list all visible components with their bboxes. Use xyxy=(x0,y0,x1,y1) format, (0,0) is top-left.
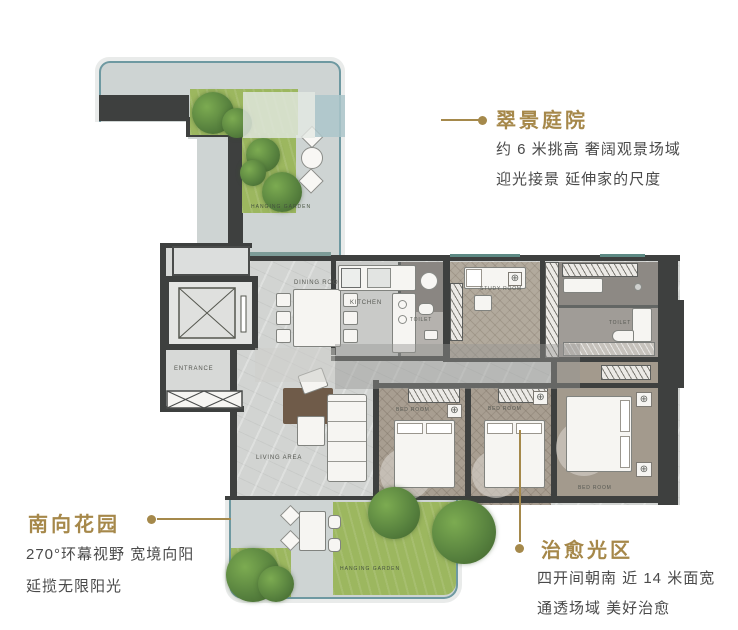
window-strip xyxy=(600,254,645,257)
callout-connector xyxy=(157,518,231,520)
toilet-icon xyxy=(612,330,634,342)
nightstand-light-icon: ⊕ xyxy=(447,404,462,418)
downlight-icon xyxy=(634,283,642,291)
basin-icon xyxy=(424,330,438,340)
nightstand-light-icon: ⊕ xyxy=(636,392,652,407)
washer-icon xyxy=(420,272,438,290)
terrace-door-line xyxy=(245,252,331,256)
ceiling-light-icon: ⊕ xyxy=(508,272,522,286)
wall-segment xyxy=(228,135,243,257)
bedroom1-label: BED ROOM xyxy=(396,407,430,413)
cloak-wardrobe xyxy=(562,263,638,277)
living-label: LIVING AREA xyxy=(256,455,302,461)
sofa xyxy=(327,394,367,482)
window-strip xyxy=(450,254,520,257)
study-label: STUDY ROOM xyxy=(462,286,540,292)
tree xyxy=(240,160,266,186)
garden-label: HANGING GARDEN xyxy=(340,566,400,572)
bed-pillow xyxy=(620,436,630,468)
callout-south-garden-title: 南向花园 xyxy=(28,508,120,537)
shoe-cabinet-icon xyxy=(166,390,243,409)
entrance-label: ENTRANCE xyxy=(174,366,213,372)
callout-dot xyxy=(515,544,524,553)
callout-dot xyxy=(147,515,156,524)
wardrobe xyxy=(601,365,651,380)
dining-room-label: DINING ROOM xyxy=(294,280,344,286)
garden-chair xyxy=(328,515,341,529)
bed-pillow xyxy=(620,400,630,432)
stove-icon xyxy=(367,268,391,288)
tree xyxy=(432,500,496,564)
bedroom2-label: BED ROOM xyxy=(488,406,522,412)
dining-chair xyxy=(276,311,291,325)
bed-pillow xyxy=(426,423,452,434)
floor-plan-page: HANGING GARDEN ENTRANCE xyxy=(0,0,738,630)
toilet2-label: TOILET xyxy=(600,320,640,326)
callout-connector xyxy=(441,119,479,121)
dining-chair xyxy=(276,293,291,307)
dining-chair xyxy=(276,329,291,343)
callout-south-garden-line2: 延揽无限阳光 xyxy=(26,575,122,596)
wardrobe xyxy=(408,388,460,403)
cloak-bench xyxy=(563,278,603,293)
callout-healing-light-line1: 四开间朝南 近 14 米面宽 xyxy=(537,567,715,588)
toilet1-label: TOILET xyxy=(398,317,444,323)
stair-shaft xyxy=(172,246,250,276)
watermark-blur xyxy=(243,92,315,138)
dining-table xyxy=(293,289,341,347)
wall-segment xyxy=(465,386,471,497)
nightstand-light-icon: ⊕ xyxy=(636,462,652,477)
wall-segment xyxy=(99,95,189,121)
wall-segment xyxy=(230,350,237,500)
bed-pillow xyxy=(487,423,513,434)
callout-connector xyxy=(519,430,521,542)
master-bedroom-label: BED ROOM xyxy=(578,485,612,491)
callout-courtyard-line1: 约 6 米挑高 奢阔观景场域 xyxy=(496,138,681,159)
watermark-blur xyxy=(335,344,580,389)
fridge-icon xyxy=(341,268,361,288)
wall-segment xyxy=(443,255,450,358)
kitchen-label: KITCHEN xyxy=(336,300,396,306)
callout-dot xyxy=(478,116,487,125)
callout-healing-light-title: 治愈光区 xyxy=(541,534,633,563)
callout-courtyard-title: 翠景庭院 xyxy=(496,104,588,133)
coffee-table xyxy=(297,416,325,446)
garden-table xyxy=(299,511,326,551)
elevator-icon xyxy=(163,276,258,350)
bed-pillow xyxy=(397,423,423,434)
tree xyxy=(368,487,420,539)
wall-segment xyxy=(674,300,684,388)
terrace-label: HANGING GARDEN xyxy=(251,204,311,210)
terrace-mask xyxy=(95,122,188,140)
terrace-table xyxy=(301,147,323,169)
nightstand-light-icon: ⊕ xyxy=(533,391,548,405)
dining-chair xyxy=(343,329,358,343)
watermark-blur xyxy=(255,348,335,382)
garden-chair xyxy=(328,538,341,552)
callout-courtyard-line2: 迎光接景 延伸家的尺度 xyxy=(496,168,661,189)
study-desk xyxy=(474,295,492,311)
wall-segment xyxy=(373,380,379,497)
toilet-icon xyxy=(418,303,434,315)
dining-chair xyxy=(343,311,358,325)
callout-healing-light-line2: 通透场域 美好治愈 xyxy=(537,597,670,618)
callout-south-garden-line1: 270°环幕视野 宽境向阳 xyxy=(26,543,194,564)
sink-icon xyxy=(398,300,407,309)
tree xyxy=(258,566,294,602)
study-pillow xyxy=(466,269,482,287)
watermark-blur xyxy=(315,95,345,137)
